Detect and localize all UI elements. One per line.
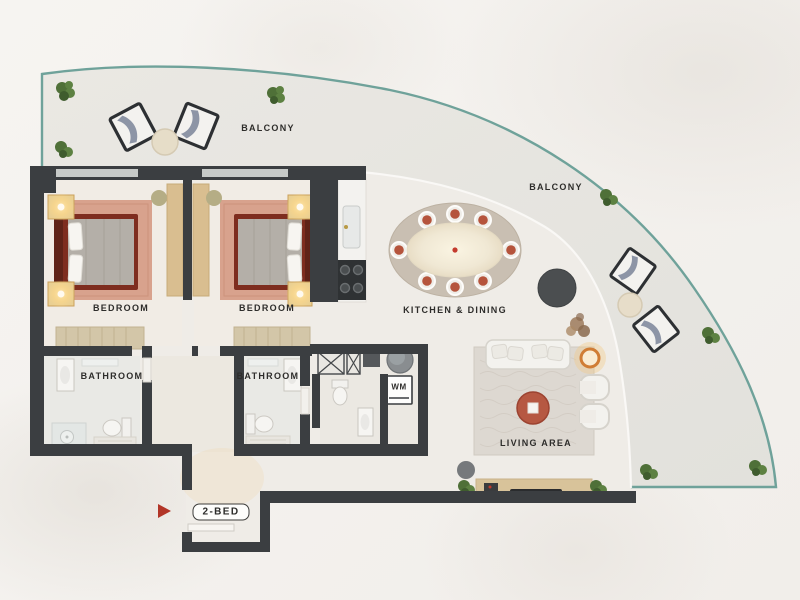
pillow	[68, 223, 83, 251]
dining-chair	[447, 206, 463, 222]
balcony-top-label: BALCONY	[241, 123, 295, 133]
wall-corridor-right	[260, 498, 270, 552]
sink-basin	[60, 366, 70, 384]
wall-bathroom1-hall	[142, 380, 152, 444]
pillow	[68, 255, 83, 283]
bedroom-2-label: BEDROOM	[239, 303, 295, 313]
wall-bottom-mid	[234, 444, 428, 456]
sofa-cushion	[531, 344, 547, 359]
armchair	[580, 375, 609, 400]
power-led	[489, 486, 492, 489]
toilet	[333, 387, 347, 405]
coffee-table-tray	[528, 403, 538, 413]
wardrobe	[167, 184, 183, 296]
wall-utility-right	[418, 344, 428, 454]
cooktop	[336, 260, 366, 300]
stool	[151, 190, 167, 206]
bathroom-2-label: BATHROOM	[237, 371, 300, 381]
dresser	[234, 327, 310, 349]
wall-wc-left	[312, 374, 320, 428]
floor-plan-canvas: BALCONY BALCONY BEDROOM BEDROOM BATHROOM…	[0, 0, 800, 600]
wall-bedroom2-stub	[192, 346, 198, 356]
wall-bathroom2-right-upper	[300, 356, 310, 386]
balcony-side-table	[152, 129, 178, 155]
dining-chair	[419, 273, 435, 289]
shelf	[248, 359, 278, 366]
toilet	[246, 414, 273, 434]
sofa-cushion	[507, 346, 523, 361]
dining-set	[389, 203, 521, 297]
kitchen	[336, 178, 366, 302]
wall-wm-partition	[380, 374, 388, 444]
wall-between-bedrooms	[183, 180, 192, 300]
toilet	[103, 418, 131, 438]
dining-chair	[391, 242, 407, 258]
bedroom-1-label: BEDROOM	[93, 303, 149, 313]
cabinet	[363, 354, 380, 367]
dining-chair	[503, 242, 519, 258]
kitchen-dining-label: KITCHEN & DINING	[403, 305, 507, 315]
sink-basin	[361, 414, 370, 430]
bathroom1-door	[143, 358, 151, 382]
bed	[234, 214, 314, 290]
wall-left	[30, 166, 44, 456]
armchair	[580, 404, 609, 429]
lamp	[58, 204, 65, 211]
floor-plan-drawing	[0, 0, 800, 600]
window	[202, 169, 288, 177]
window	[56, 169, 138, 177]
sofa-cushion	[547, 346, 564, 361]
lamp	[297, 204, 304, 211]
shelf	[82, 359, 118, 366]
bed	[54, 214, 138, 290]
sofa	[486, 340, 570, 369]
bathroom2-door	[301, 388, 309, 414]
wall-bedroom1-bathroom1	[30, 346, 132, 356]
washer-label: WM	[391, 383, 406, 392]
wall-corridor-left	[182, 444, 192, 490]
pillow	[287, 255, 302, 283]
wall-corridor-bottom	[182, 542, 270, 552]
round-accent-table	[538, 269, 576, 307]
pillow	[287, 223, 302, 251]
dining-chair	[475, 273, 491, 289]
wall-bottom-left	[30, 444, 190, 456]
table-centerpiece	[452, 247, 457, 252]
faucet	[344, 225, 348, 229]
balcony-side-table	[618, 293, 642, 317]
entry-door	[188, 524, 234, 531]
wall-utility-top	[310, 344, 428, 354]
wall-bedroom2-bathroom2	[220, 346, 312, 356]
lamp	[58, 291, 65, 298]
dining-chair	[447, 279, 463, 295]
floor-lamp	[581, 349, 599, 367]
lamp	[297, 291, 304, 298]
wall-bathroom2-right-lower	[300, 414, 310, 444]
headboard	[54, 216, 63, 288]
stool	[206, 190, 222, 206]
dresser	[56, 327, 144, 349]
entry-glow	[180, 448, 264, 508]
armchair-seat	[580, 410, 596, 423]
wall-bedroom2-kitchen	[310, 178, 338, 302]
wall-bathroom2-left	[234, 356, 244, 444]
unit-type-badge: 2-BED	[192, 504, 249, 521]
entry-arrow-icon	[158, 504, 171, 518]
wall-bottom-living	[260, 491, 636, 503]
armchair-seat	[580, 381, 596, 394]
balcony-right-label: BALCONY	[529, 182, 583, 192]
bathroom-1-label: BATHROOM	[81, 371, 144, 381]
wall-hall-stub	[142, 346, 152, 358]
pouf	[457, 461, 475, 479]
living-area-label: LIVING AREA	[500, 438, 572, 448]
sofa-cushion	[491, 344, 508, 359]
hallway-floor	[152, 356, 234, 452]
drain	[66, 436, 69, 439]
